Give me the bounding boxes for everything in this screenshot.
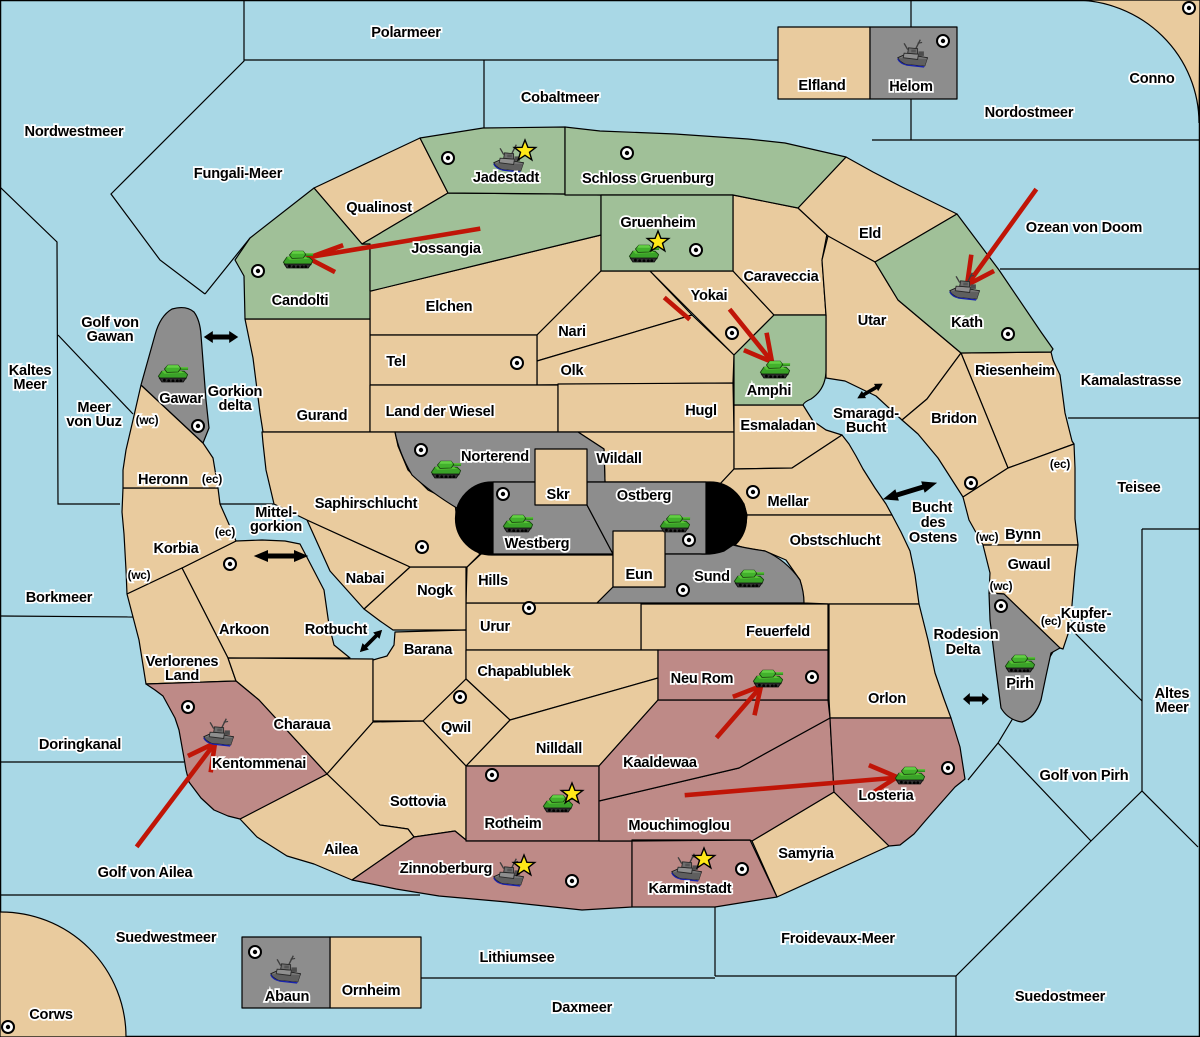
svg-text:Jossangia: Jossangia bbox=[411, 241, 482, 257]
svg-text:Gwaul: Gwaul bbox=[1008, 557, 1051, 573]
svg-text:Jadestadt: Jadestadt bbox=[473, 170, 540, 186]
svg-text:Pirh: Pirh bbox=[1006, 676, 1034, 692]
svg-text:Polarmeer: Polarmeer bbox=[371, 25, 441, 41]
svg-text:Kentommenai: Kentommenai bbox=[212, 756, 306, 772]
svg-text:Rotbucht: Rotbucht bbox=[305, 622, 368, 638]
svg-text:Nordostmeer: Nordostmeer bbox=[985, 105, 1074, 121]
svg-text:von Uuz: von Uuz bbox=[66, 414, 121, 430]
svg-text:Eld: Eld bbox=[859, 226, 881, 242]
svg-text:Eun: Eun bbox=[626, 567, 653, 583]
svg-text:Sund: Sund bbox=[694, 569, 730, 585]
svg-text:Bridon: Bridon bbox=[931, 411, 977, 427]
svg-text:Heronn: Heronn bbox=[138, 472, 188, 488]
svg-text:Qwil: Qwil bbox=[441, 720, 471, 736]
svg-text:Cobaltmeer: Cobaltmeer bbox=[521, 90, 600, 106]
svg-text:Land der Wiesel: Land der Wiesel bbox=[386, 404, 495, 420]
svg-text:Urur: Urur bbox=[480, 619, 511, 635]
svg-text:Küste: Küste bbox=[1066, 620, 1106, 636]
svg-text:Yokai: Yokai bbox=[691, 288, 728, 304]
svg-text:Mellar: Mellar bbox=[768, 494, 809, 510]
svg-text:Schloss Gruenburg: Schloss Gruenburg bbox=[582, 171, 714, 187]
svg-text:Froidevaux-Meer: Froidevaux-Meer bbox=[781, 931, 895, 947]
svg-text:Chapablublek: Chapablublek bbox=[477, 664, 571, 680]
svg-text:Tel: Tel bbox=[386, 354, 406, 370]
svg-text:Norterend: Norterend bbox=[461, 449, 529, 465]
svg-text:Suedostmeer: Suedostmeer bbox=[1015, 989, 1106, 1005]
svg-text:Elchen: Elchen bbox=[426, 299, 473, 315]
svg-text:Westberg: Westberg bbox=[505, 536, 570, 552]
svg-text:Fungali-Meer: Fungali-Meer bbox=[194, 166, 283, 182]
svg-text:Nari: Nari bbox=[558, 324, 586, 340]
svg-text:Lithiumsee: Lithiumsee bbox=[479, 950, 554, 966]
svg-text:Rotheim: Rotheim bbox=[485, 816, 542, 832]
svg-text:Korbia: Korbia bbox=[153, 541, 199, 557]
svg-text:Teisee: Teisee bbox=[1117, 480, 1160, 496]
svg-text:Gruenheim: Gruenheim bbox=[620, 215, 695, 231]
svg-text:(wc): (wc) bbox=[136, 413, 159, 427]
svg-text:Olk: Olk bbox=[561, 363, 585, 379]
svg-text:des: des bbox=[921, 515, 946, 531]
svg-text:(wc): (wc) bbox=[990, 579, 1013, 593]
svg-text:Charaua: Charaua bbox=[274, 717, 332, 733]
svg-text:Kamalastrasse: Kamalastrasse bbox=[1081, 373, 1182, 389]
svg-text:Kath: Kath bbox=[951, 315, 983, 331]
svg-text:Samyria: Samyria bbox=[778, 846, 834, 862]
svg-text:Neu Rom: Neu Rom bbox=[671, 671, 734, 687]
svg-text:Rodesion: Rodesion bbox=[934, 627, 999, 643]
svg-text:(ec): (ec) bbox=[215, 525, 235, 539]
svg-text:Delta: Delta bbox=[946, 642, 982, 658]
svg-text:Obstschlucht: Obstschlucht bbox=[790, 533, 881, 549]
svg-text:Gurand: Gurand bbox=[297, 408, 348, 424]
svg-text:(ec): (ec) bbox=[202, 472, 222, 486]
svg-text:Gawar: Gawar bbox=[159, 391, 203, 407]
svg-text:Daxmeer: Daxmeer bbox=[552, 1000, 613, 1016]
svg-text:Nordwestmeer: Nordwestmeer bbox=[25, 124, 125, 140]
svg-text:Hugl: Hugl bbox=[685, 403, 717, 419]
svg-text:Wildall: Wildall bbox=[596, 451, 642, 467]
svg-text:Mouchimoglou: Mouchimoglou bbox=[628, 818, 729, 834]
svg-text:(wc): (wc) bbox=[128, 568, 151, 582]
svg-text:Utar: Utar bbox=[858, 313, 887, 329]
svg-text:Arkoon: Arkoon bbox=[219, 622, 269, 638]
svg-text:Corws: Corws bbox=[29, 1007, 73, 1023]
svg-text:Gawan: Gawan bbox=[87, 329, 134, 345]
svg-text:Skr: Skr bbox=[547, 487, 570, 503]
svg-text:Nabai: Nabai bbox=[346, 571, 385, 587]
svg-text:Ozean von Doom: Ozean von Doom bbox=[1026, 220, 1143, 236]
svg-text:Bucht: Bucht bbox=[912, 500, 953, 516]
svg-text:Ailea: Ailea bbox=[324, 842, 359, 858]
svg-text:Candolti: Candolti bbox=[272, 293, 329, 309]
svg-text:Orlon: Orlon bbox=[868, 691, 906, 707]
svg-text:Sottovia: Sottovia bbox=[390, 794, 447, 810]
svg-text:(ec): (ec) bbox=[1050, 457, 1070, 471]
svg-text:Kaaldewaa: Kaaldewaa bbox=[623, 755, 698, 771]
svg-text:Caraveccia: Caraveccia bbox=[743, 269, 819, 285]
svg-text:Saphirschlucht: Saphirschlucht bbox=[315, 496, 418, 512]
svg-text:Abaun: Abaun bbox=[265, 989, 310, 1005]
svg-text:Nogk: Nogk bbox=[417, 583, 454, 599]
svg-text:Bucht: Bucht bbox=[846, 420, 887, 436]
svg-text:Riesenheim: Riesenheim bbox=[975, 363, 1055, 379]
svg-text:Amphi: Amphi bbox=[747, 383, 792, 399]
svg-text:Land: Land bbox=[165, 668, 199, 684]
svg-text:Helom: Helom bbox=[889, 79, 933, 95]
svg-text:Barana: Barana bbox=[404, 642, 453, 658]
svg-text:Golf von Ailea: Golf von Ailea bbox=[98, 865, 194, 881]
svg-text:Zinnoberburg: Zinnoberburg bbox=[400, 861, 492, 877]
svg-text:Qualinost: Qualinost bbox=[346, 200, 412, 216]
svg-text:Ornheim: Ornheim bbox=[342, 983, 401, 999]
svg-text:Karminstadt: Karminstadt bbox=[649, 881, 732, 897]
svg-text:Meer: Meer bbox=[1155, 700, 1189, 716]
svg-text:Elfland: Elfland bbox=[798, 78, 845, 94]
svg-text:delta: delta bbox=[218, 398, 252, 414]
svg-text:Meer: Meer bbox=[13, 377, 47, 393]
svg-text:Borkmeer: Borkmeer bbox=[26, 590, 93, 606]
svg-text:Bynn: Bynn bbox=[1005, 527, 1041, 543]
svg-text:Feuerfeld: Feuerfeld bbox=[746, 624, 810, 640]
svg-text:Suedwestmeer: Suedwestmeer bbox=[116, 930, 217, 946]
svg-text:Doringkanal: Doringkanal bbox=[39, 737, 121, 753]
svg-text:(ec): (ec) bbox=[1041, 614, 1061, 628]
svg-text:Ostens: Ostens bbox=[909, 530, 957, 546]
svg-text:Hills: Hills bbox=[478, 573, 508, 589]
svg-text:gorkion: gorkion bbox=[250, 519, 302, 535]
svg-text:Esmaladan: Esmaladan bbox=[740, 418, 816, 434]
svg-text:Conno: Conno bbox=[1129, 71, 1174, 87]
svg-text:Nilldall: Nilldall bbox=[536, 741, 582, 757]
svg-text:Losteria: Losteria bbox=[858, 788, 914, 804]
svg-text:Golf von Pirh: Golf von Pirh bbox=[1039, 768, 1128, 784]
svg-text:(wc): (wc) bbox=[976, 530, 999, 544]
svg-text:Ostberg: Ostberg bbox=[617, 488, 672, 504]
